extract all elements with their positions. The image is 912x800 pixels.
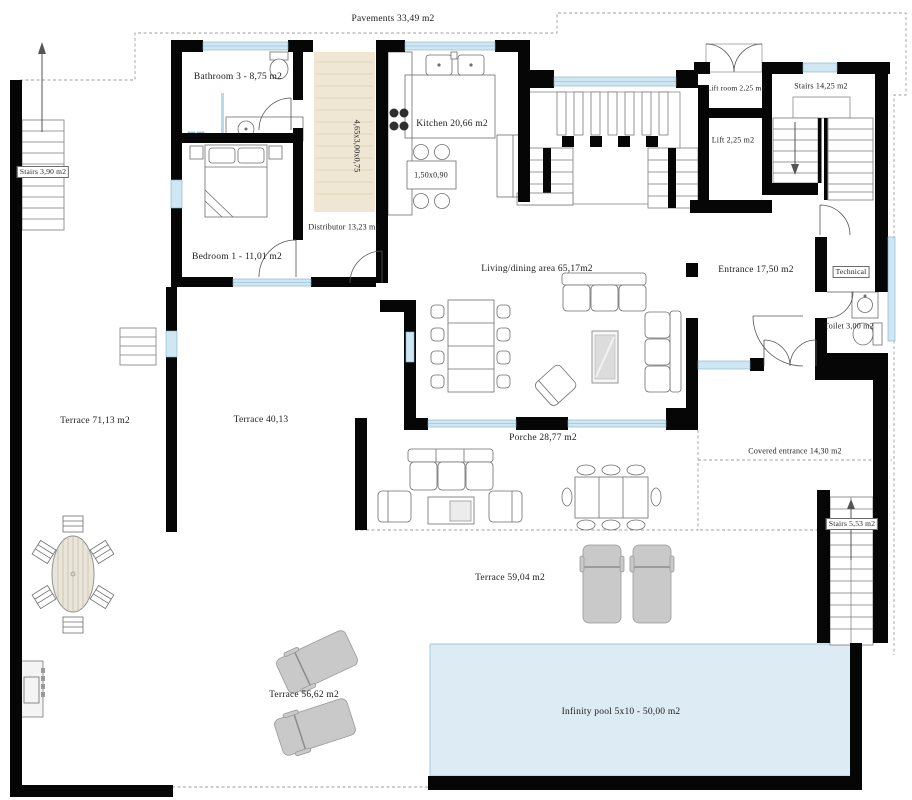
label-stairs-left: Stairs 3,90 m2 <box>17 166 69 178</box>
label-pavements: Pavements 33,49 m2 <box>351 14 434 24</box>
toilet-fixtures <box>852 292 882 345</box>
label-terrace-mid: Terrace 40,13 <box>234 415 289 425</box>
corridor-wood-floor <box>314 52 375 212</box>
terrace-steps-glyph <box>120 328 156 365</box>
living-furniture <box>431 273 681 408</box>
windows <box>166 42 895 427</box>
label-covered-entrance: Covered entrance 14,30 m2 <box>748 447 841 456</box>
central-stairs-glyph <box>517 92 698 208</box>
label-entrance: Entrance 17,50 m2 <box>718 265 793 275</box>
lift-doors-symbol <box>706 44 762 72</box>
porch-furniture <box>378 449 522 524</box>
bbq-grill <box>20 661 45 717</box>
label-bedroom1: Bedroom 1 - 11,01 m2 <box>192 252 282 262</box>
label-terrace-pool: Terrace 56,62 m2 <box>269 690 339 700</box>
stairs-left-glyph <box>22 42 64 230</box>
floor-plan: Pavements 33,49 m2 Bathroom 3 - 8,75 m2 … <box>0 0 912 800</box>
label-terrace-left: Terrace 71,13 m2 <box>60 416 130 426</box>
label-kitchen: Kitchen 20,66 m2 <box>416 119 488 129</box>
label-porche: Porche 28,77 m2 <box>509 433 577 443</box>
label-living-dining: Living/dining area 65,17m2 <box>481 264 593 274</box>
armchair <box>533 363 578 407</box>
label-infinity-pool: Infinity pool 5x10 - 50,00 m2 <box>562 707 681 717</box>
label-lift-room: Lift room 2,25 m2 <box>707 84 766 93</box>
bed <box>190 145 282 217</box>
tv-panel <box>592 331 618 383</box>
label-bathroom3: Bathroom 3 - 8,75 m2 <box>194 72 282 82</box>
label-corridor-dimension: 4,65x3,00x0,75 <box>353 120 362 173</box>
label-kitchen-table-dimension: 1,50x0,90 <box>414 171 448 180</box>
kitchen-fixtures <box>388 52 529 215</box>
label-technical: Technical <box>833 266 870 278</box>
label-stairs-bottom-right: Stairs 5,53 m2 <box>826 518 878 530</box>
label-lift: Lift 2,25 m2 <box>712 136 755 145</box>
label-terrace-back: Terrace 59,04 m2 <box>475 573 545 583</box>
label-toilet: Toilet 3,00 m2 <box>824 322 874 331</box>
stairs-up-arrow <box>38 42 46 132</box>
sun-loungers-back <box>580 545 674 623</box>
bathroom-fixtures <box>188 52 303 141</box>
terrace-dining-set <box>20 516 114 717</box>
label-stairs-top-right: Stairs 14,25 m2 <box>794 82 847 91</box>
outdoor-dining-set <box>562 465 661 530</box>
label-distributor: Distributor 13,23 m2 <box>308 223 379 232</box>
